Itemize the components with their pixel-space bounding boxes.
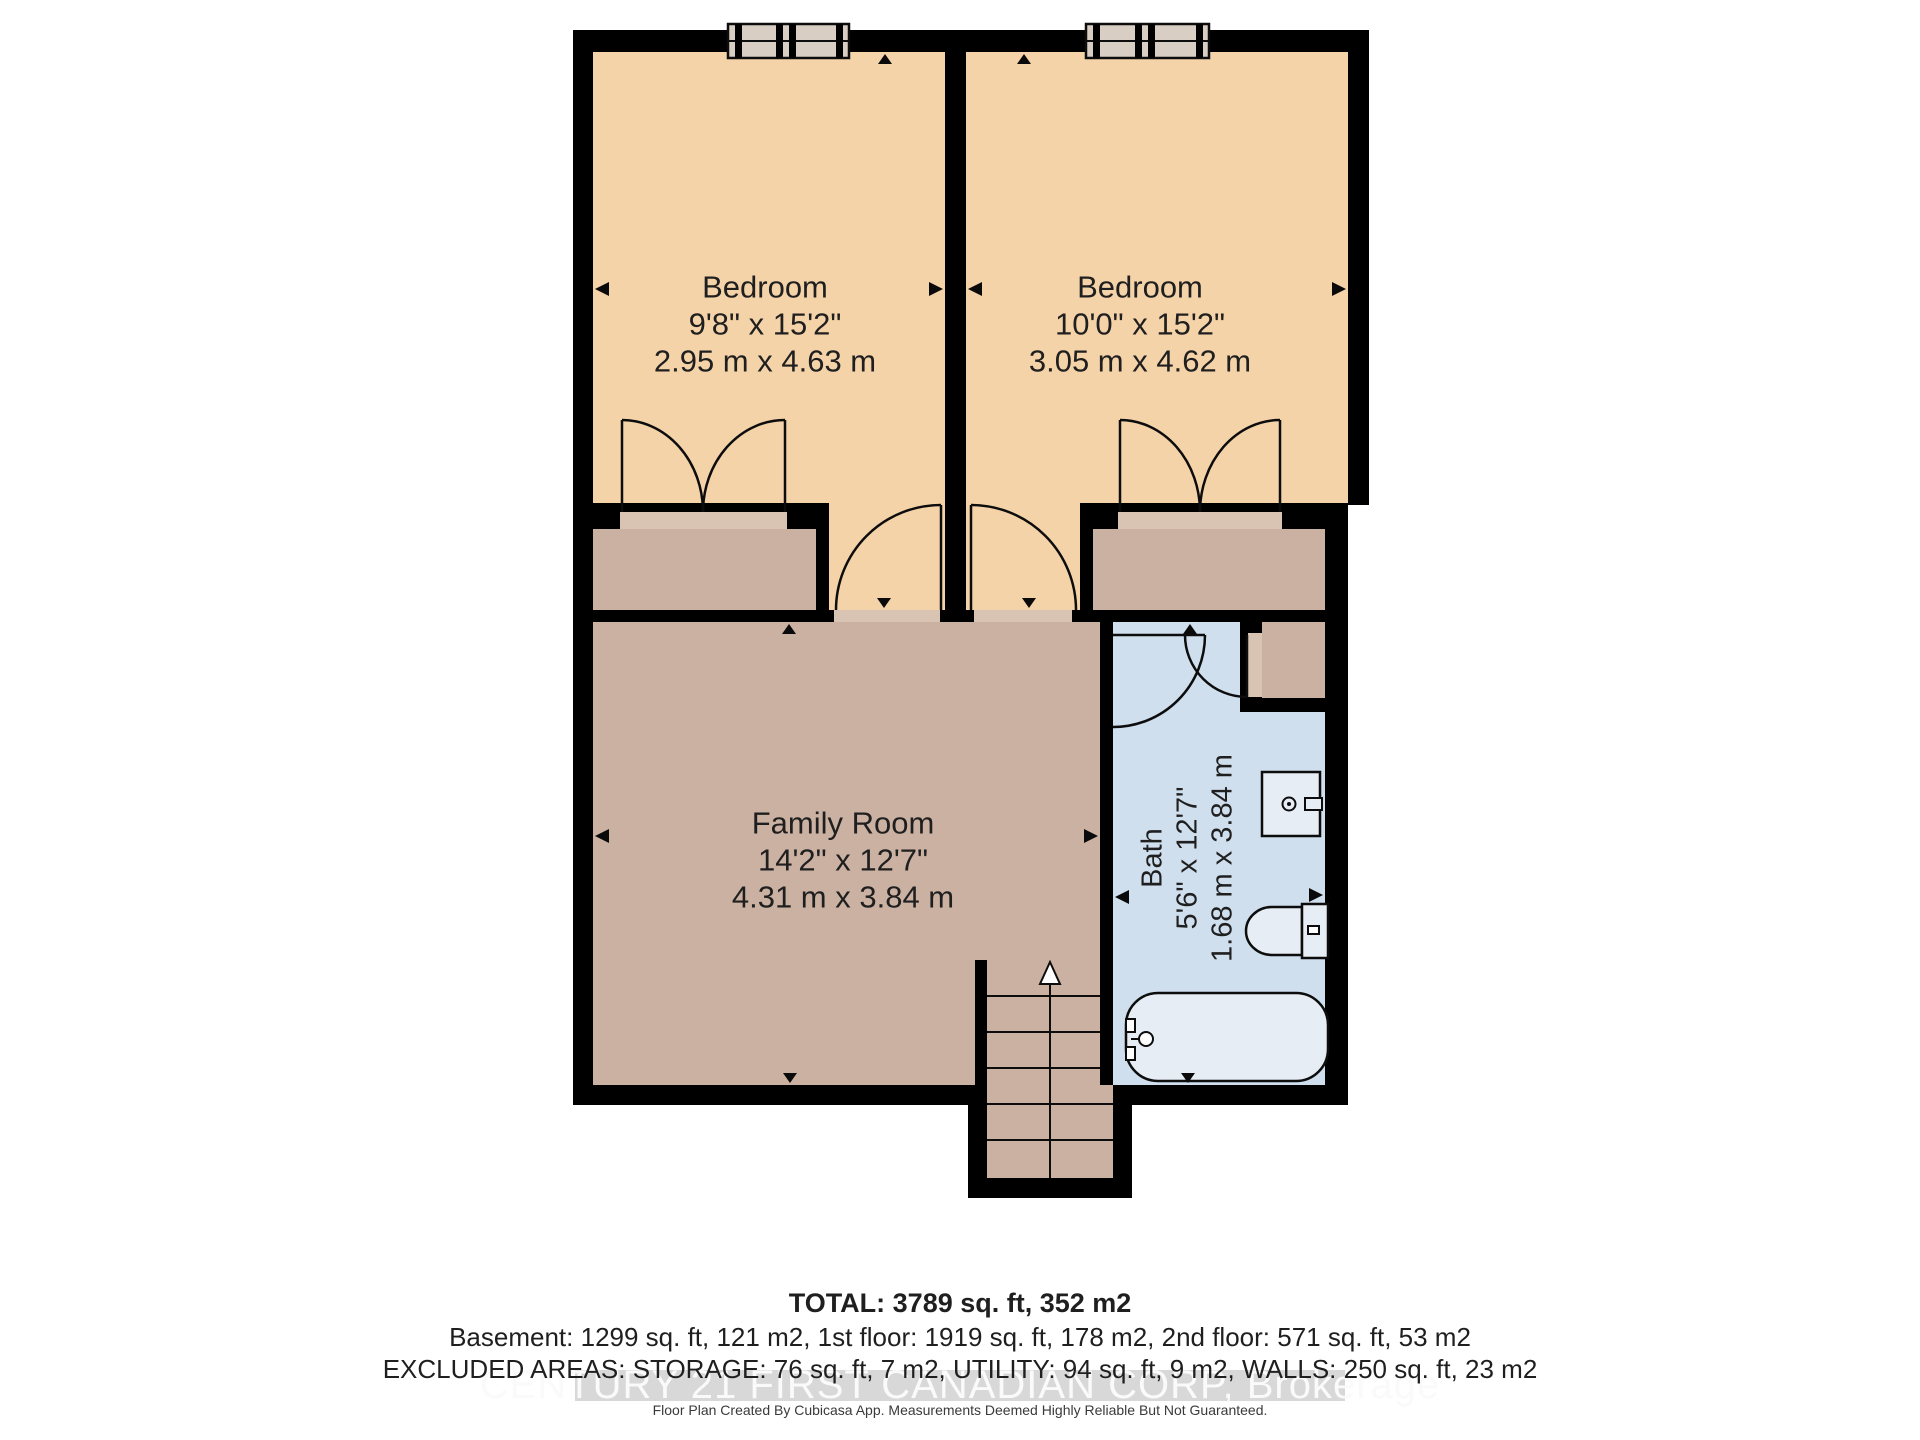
bath-nook (1240, 622, 1348, 712)
closet-1 (573, 503, 829, 622)
bath-left-wall (1100, 622, 1113, 1085)
exterior-inset (1348, 505, 1373, 1105)
staircase (975, 960, 1113, 1178)
room-dims-imperial: 14'2" x 12'7" (732, 842, 954, 879)
room-dims-metric: 4.31 m x 3.84 m (732, 879, 954, 916)
toilet-icon (1246, 904, 1328, 958)
room-dims-metric: 2.95 m x 4.63 m (654, 343, 876, 380)
floor-areas-line: Basement: 1299 sq. ft, 121 m2, 1st floor… (0, 1322, 1920, 1353)
sink-icon (1262, 772, 1322, 836)
total-area-line: TOTAL: 3789 sq. ft, 352 m2 (0, 1288, 1920, 1319)
window-bedroom-1 (728, 24, 849, 58)
excluded-areas-line: EXCLUDED AREAS: STORAGE: 76 sq. ft, 7 m2… (0, 1354, 1920, 1385)
room-name: Bath (1136, 754, 1171, 962)
disclaimer-text: Floor Plan Created By Cubicasa App. Meas… (0, 1402, 1920, 1418)
room-label-bath: Bath 5'6" x 12'7" 1.68 m x 3.84 m (1136, 754, 1241, 962)
closet-2 (1080, 503, 1348, 622)
floorplan-drawing (0, 0, 1920, 1440)
bedroom-1-door-sill (834, 610, 940, 622)
room-label-bedroom-1: Bedroom 9'8" x 15'2" 2.95 m x 4.63 m (654, 269, 876, 380)
room-name: Bedroom (654, 269, 876, 306)
room-name: Bedroom (1029, 269, 1251, 306)
room-dims-imperial: 5'6" x 12'7" (1171, 754, 1206, 962)
room-dims-imperial: 9'8" x 15'2" (654, 306, 876, 343)
floorplan-page: Bedroom 9'8" x 15'2" 2.95 m x 4.63 m Bed… (0, 0, 1920, 1440)
window-bedroom-2 (1086, 24, 1209, 58)
room-label-family-room: Family Room 14'2" x 12'7" 4.31 m x 3.84 … (732, 805, 954, 916)
room-dims-imperial: 10'0" x 15'2" (1029, 306, 1251, 343)
bedroom-2-door-sill (974, 610, 1072, 622)
room-dims-metric: 3.05 m x 4.62 m (1029, 343, 1251, 380)
room-label-bedroom-2: Bedroom 10'0" x 15'2" 3.05 m x 4.62 m (1029, 269, 1251, 380)
room-name: Family Room (732, 805, 954, 842)
bathtub-icon (1126, 993, 1328, 1081)
room-dims-metric: 1.68 m x 3.84 m (1206, 754, 1241, 962)
